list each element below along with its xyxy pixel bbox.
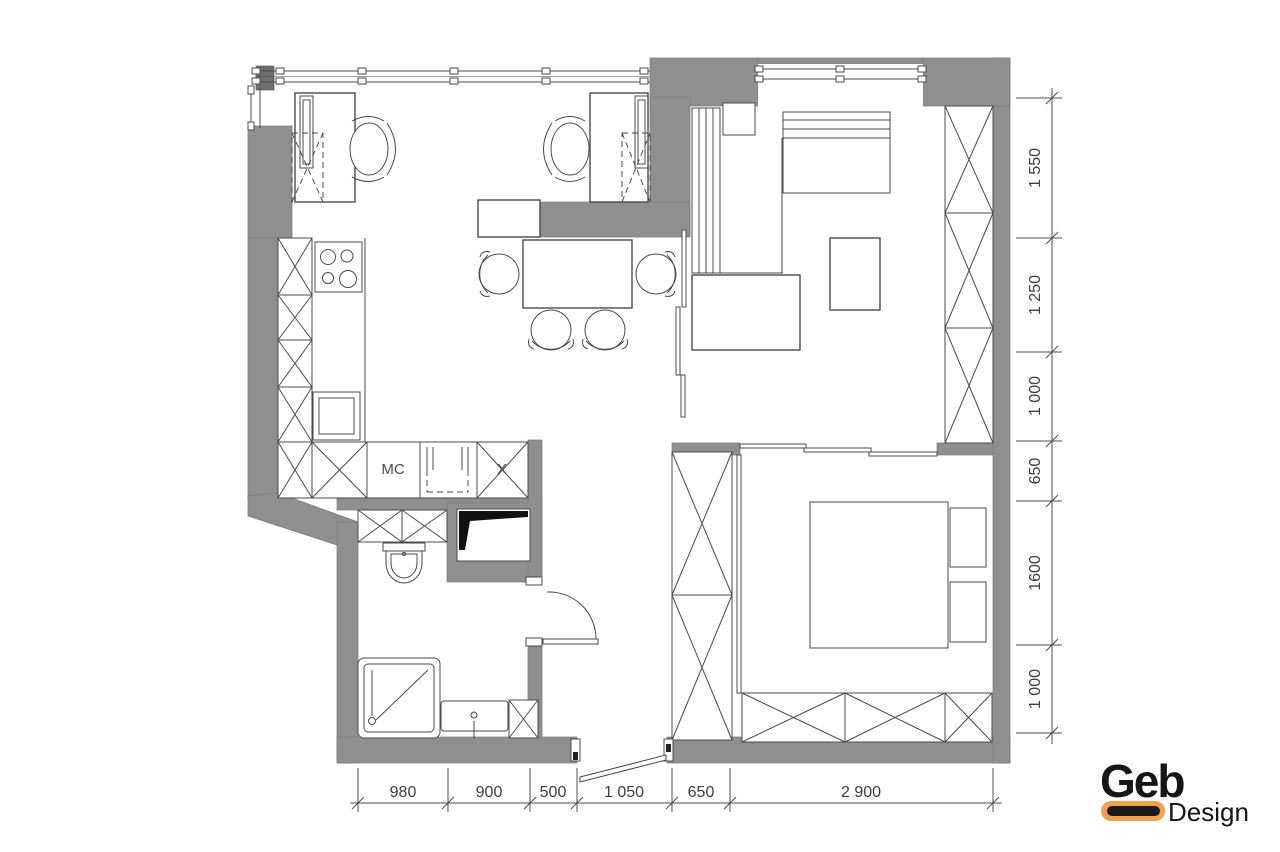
entrance-door-leaf [580, 755, 666, 782]
dim-right-1: 1 550 [1027, 148, 1044, 188]
logo: Geb Design [1100, 755, 1249, 827]
pillow-1 [950, 508, 986, 567]
dim-bottom-2: 900 [476, 784, 503, 801]
dim-right-3: 1 000 [1027, 376, 1044, 416]
bedroom [672, 444, 992, 742]
shower [358, 658, 440, 738]
pillow-2 [950, 582, 986, 642]
stove [315, 242, 362, 292]
dining-chair-right [636, 252, 676, 297]
toilet [383, 543, 425, 583]
daybed-ottoman [692, 275, 800, 350]
logo-black-bar [1107, 806, 1160, 816]
coffee-table [830, 238, 880, 310]
bedroom-wardrobe-bottom [742, 693, 992, 742]
living-sliding-partition [676, 230, 686, 417]
bathroom-cabinet-top [358, 510, 447, 542]
wall-bathroom-left [337, 522, 358, 763]
dim-right-5: 1600 [1027, 555, 1044, 591]
bathroom-door-swing [547, 592, 596, 639]
kitchen-sink [313, 392, 360, 440]
floor-plan-sheet: MC X [0, 0, 1280, 852]
wall-left-block [248, 126, 292, 238]
bedroom-sliding-door [740, 444, 937, 456]
counter-cabinet [478, 200, 540, 237]
office-chair-right [544, 117, 590, 182]
dining-table [523, 240, 632, 308]
dining-chair-left [479, 252, 519, 297]
wall-divider-horizontal [540, 202, 690, 237]
wall-left [248, 238, 278, 500]
desk-left [295, 93, 355, 202]
wall-right [993, 58, 1010, 763]
side-table [723, 103, 755, 135]
bedroom-west-partition [737, 455, 741, 693]
bathroom-door [526, 577, 598, 646]
wall-bottom-left [337, 737, 577, 763]
wall-top-living-right [923, 58, 1010, 106]
living-wardrobe [945, 106, 993, 443]
dim-bottom-4: 1 050 [604, 784, 644, 801]
bed [810, 502, 986, 648]
bathroom-sink [441, 701, 508, 739]
bathroom-door-leaf [543, 639, 598, 644]
office-chair-left [350, 117, 396, 182]
entrance-door [571, 739, 673, 782]
cabinet-label-mc: MC [381, 461, 404, 478]
dim-right-6: 1 000 [1027, 669, 1044, 709]
dining-area [479, 240, 676, 350]
kitchen-cabinet-column [278, 238, 312, 442]
dining-chair-bottom-1 [529, 310, 574, 350]
cabinet-label-x: X [497, 461, 507, 478]
duct-shaft [457, 509, 530, 561]
dim-right-4: 650 [1027, 458, 1044, 485]
floor-plan-drawing: MC X [0, 0, 1280, 852]
wall-bedroom-top-right-stub [937, 443, 993, 455]
bottom-extension-lines [358, 768, 993, 812]
wall-top-window-lintel [758, 58, 923, 64]
living-room [676, 103, 993, 443]
dim-bottom-6: 2 900 [841, 784, 881, 801]
desk-right [590, 93, 648, 202]
dim-bottom-1: 980 [390, 784, 417, 801]
window-west [248, 86, 260, 130]
logo-sub-text: Design [1168, 797, 1249, 827]
dim-bottom-5: 650 [688, 784, 715, 801]
dim-right-2: 1 250 [1027, 275, 1044, 315]
hall-wardrobe [672, 452, 732, 740]
dining-chair-bottom-2 [583, 310, 628, 350]
dim-bottom-3: 500 [540, 784, 567, 801]
bathroom-cabinet-x [509, 700, 538, 738]
